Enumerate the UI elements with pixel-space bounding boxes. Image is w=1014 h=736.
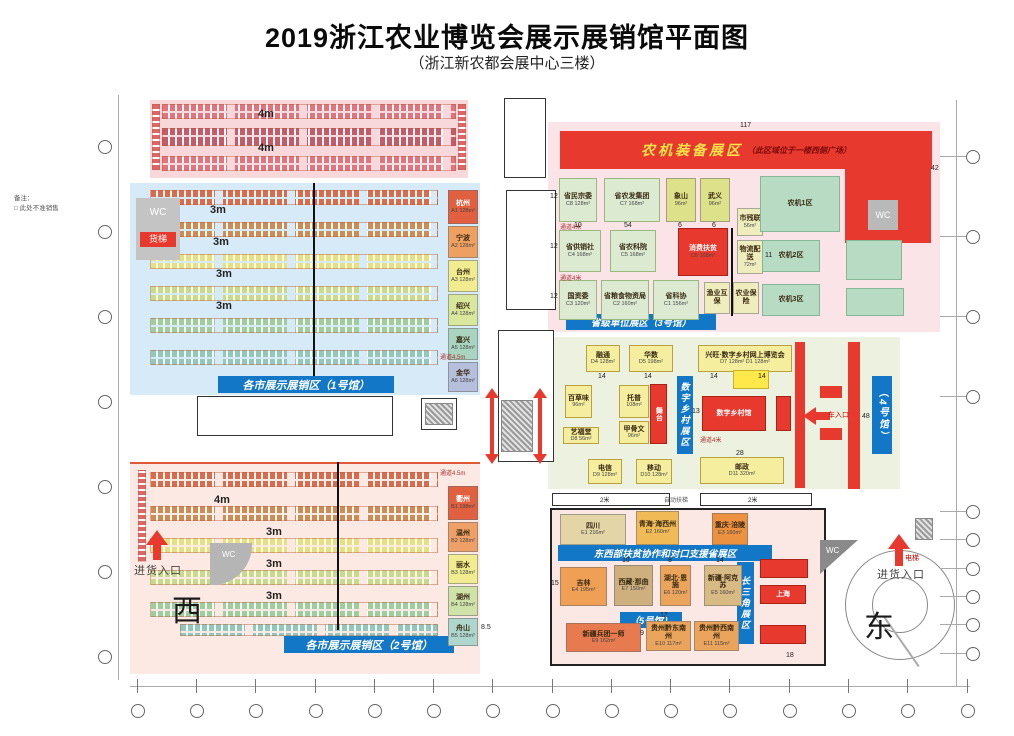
block-code: 96m² xyxy=(675,201,688,207)
map-block: 渔业互保 xyxy=(704,282,730,314)
block-code: D5 198m² xyxy=(639,359,663,365)
map-block: 湖州 B4 128m² xyxy=(448,586,478,616)
map-label: 6 xyxy=(712,222,716,229)
block-code: A3 128m² xyxy=(451,277,475,283)
map-label: 54 xyxy=(624,222,632,229)
map-block xyxy=(776,396,791,431)
block-code: A1 128m² xyxy=(451,208,475,214)
block-name: 华数 xyxy=(644,352,658,360)
block-name: 农业保险 xyxy=(735,290,757,305)
map-block: 金华 A6 128m² xyxy=(448,362,478,392)
west-entrance-arrow xyxy=(146,530,168,545)
block-code: 96m² xyxy=(709,201,722,207)
hall2-banner: 各市展示展销区（2号馆） xyxy=(284,636,454,653)
map-block: 省民宗委 C8 128m² xyxy=(559,178,597,222)
block-code: B1 198m² xyxy=(451,504,475,510)
map-label: 4m xyxy=(258,142,274,154)
map-block: 移动 D10 128m² xyxy=(636,459,672,484)
block-name: 西藏·那曲 xyxy=(618,579,648,587)
map-block: 托普 108m² xyxy=(619,385,649,418)
block-name: 省农科院 xyxy=(619,244,647,252)
block-name: 湖北·恩施 xyxy=(662,575,689,590)
map-block: 融通 D4 128m² xyxy=(586,345,620,372)
map-block: 艺福堂 D8 56m² xyxy=(563,427,599,444)
booth-strip xyxy=(162,104,456,119)
block-code: C5 168m² xyxy=(621,252,645,258)
block-name: 上海 xyxy=(776,591,790,599)
map-block: 四川 E1 216m² xyxy=(560,514,626,545)
map-label: 4m xyxy=(258,108,274,120)
map-block: 数字乡村馆 xyxy=(702,396,766,431)
block-code: E4 195m² xyxy=(572,587,596,593)
wc-label: WC xyxy=(136,198,180,228)
elevator-hatch xyxy=(425,403,453,425)
map-label: 通道4米 xyxy=(560,273,581,282)
booth-strip xyxy=(162,128,456,146)
block-code: C1 156m² xyxy=(664,301,688,307)
booth-strip xyxy=(152,104,160,170)
block-name: 丽水 xyxy=(456,562,470,570)
map-label: 14 xyxy=(598,373,606,380)
red-block xyxy=(820,386,842,398)
map-label: 15 xyxy=(551,580,559,587)
escalator-hatch xyxy=(501,400,533,452)
block-code: B5 128m² xyxy=(451,633,475,639)
block-name: 象山 xyxy=(674,193,688,201)
map-block: 消费扶贫 C6 168m² xyxy=(678,228,728,276)
map-label: 10 xyxy=(574,222,582,229)
booth-strip xyxy=(150,318,438,333)
map-label: 117 xyxy=(740,122,751,129)
block-code: D9 128m² xyxy=(593,472,617,478)
block-code: C6 168m² xyxy=(691,253,715,259)
corridor-rect xyxy=(552,493,670,506)
map-label: 2米 xyxy=(748,495,757,504)
machinery-banner: 农机装备展区 （此区域位于一楼西侧广场） xyxy=(560,131,932,169)
block-name: 托普 xyxy=(627,395,641,403)
booth-strip xyxy=(150,506,438,521)
booth-strip xyxy=(180,624,438,636)
map-block: 贵州黔东南州 E10 117m² xyxy=(646,621,691,651)
escalator-arrow xyxy=(485,388,499,464)
map-label: 14 xyxy=(710,373,718,380)
block-code: A5 128m² xyxy=(451,345,475,351)
grid-line-bottom xyxy=(130,686,970,687)
block-code: B4 128m² xyxy=(451,602,475,608)
block-name: 兴旺·数字乡村网上博览会 xyxy=(705,352,784,360)
map-block: 邮政 D11 320m² xyxy=(700,457,784,484)
east-west-banner: 东西部扶贫协作和对口支援省展区 xyxy=(558,545,772,561)
block-code: E7 150m² xyxy=(622,586,646,592)
stair-hatch xyxy=(915,518,933,540)
block-name: 数字乡村馆 xyxy=(717,410,752,418)
map-block: 新疆兵团一师 E9 162m² xyxy=(566,623,641,652)
booth-strip xyxy=(150,350,438,365)
block-name: 舞台 xyxy=(655,407,663,421)
map-block xyxy=(760,559,808,578)
map-label: 4m xyxy=(214,494,230,506)
block-code: C3 120m² xyxy=(566,301,590,307)
hall-divider xyxy=(337,462,339,630)
block-name: 电信 xyxy=(598,465,612,473)
block-name: 邮政 xyxy=(735,464,749,472)
red-block xyxy=(820,428,842,440)
block-name: 百草味 xyxy=(568,395,589,403)
map-label: 11 xyxy=(765,252,772,259)
block-code: D7 128m² D1 128m² xyxy=(720,359,770,365)
map-block xyxy=(760,625,806,644)
machinery-banner-text: 农机装备展区 xyxy=(641,140,743,160)
booth-strip xyxy=(162,156,456,171)
block-code: E5 160m² xyxy=(711,590,735,596)
legend-text: □ 此处不准销售 xyxy=(14,204,59,214)
map-block: 青海·海西州 E2 160m² xyxy=(636,511,679,545)
compass-east: 东 xyxy=(864,602,894,646)
elevator-label: 电梯 xyxy=(905,553,919,563)
map-label: 9 xyxy=(640,630,644,637)
map-block: 西藏·那曲 E7 150m² xyxy=(614,565,653,606)
wc-label: WC xyxy=(826,546,839,555)
map-label: 14 xyxy=(716,557,724,564)
block-name: 农机1区 xyxy=(788,200,813,208)
vehicle-entrance-label: 车入口 xyxy=(828,410,849,420)
block-name: 农机2区 xyxy=(779,252,804,260)
map-label: 8.5 xyxy=(481,624,491,631)
map-block: 百草味 96m² xyxy=(565,385,592,418)
booth-strip xyxy=(150,286,438,301)
page-title: 2019浙江农业博览会展示展销馆平面图 xyxy=(0,16,1014,55)
block-name: 湖州 xyxy=(456,594,470,602)
booth-strip xyxy=(150,570,438,585)
map-label: 3m xyxy=(266,558,282,570)
grid-line-left xyxy=(118,95,119,680)
map-label: 3m xyxy=(266,526,282,538)
block-code: D4 128m² xyxy=(591,359,615,365)
map-block: 电信 D9 128m² xyxy=(588,459,622,484)
block-name: 艺福堂 xyxy=(571,429,592,437)
block-code: A6 128m² xyxy=(451,378,475,384)
map-label: 通道4.5m xyxy=(440,468,465,477)
map-block: 省科协 C1 156m² xyxy=(653,280,699,320)
stage-area xyxy=(197,396,393,436)
block-name: 贵州黔东南州 xyxy=(648,625,689,640)
map-block xyxy=(846,288,904,316)
map-label: 14 xyxy=(758,373,766,380)
block-name: 物流配送 xyxy=(739,246,761,261)
block-name: 省粮食物资局 xyxy=(604,293,646,301)
block-code: E2 160m² xyxy=(646,529,670,535)
map-label: 18 xyxy=(786,652,794,659)
freight-elevator: 货梯 xyxy=(140,232,176,247)
map-block: 贵州黔西南州 E11 115m² xyxy=(694,621,739,651)
block-name: 市残联 xyxy=(740,215,761,223)
map-block: 宁波 A2 128m² xyxy=(448,226,478,258)
booth-strip xyxy=(150,538,438,553)
block-name: 新疆·阿克苏 xyxy=(706,575,740,590)
map-block: 省粮食物资局 C2 160m² xyxy=(601,280,649,320)
vehicle-entrance-arrow xyxy=(803,407,816,425)
map-label: 12 xyxy=(550,193,558,200)
map-block: 省农发集团 C7 168m² xyxy=(604,178,660,222)
block-code: D10 128m² xyxy=(640,472,667,478)
block-name: 新疆兵团一师 xyxy=(583,631,625,639)
block-code: E11 115m² xyxy=(703,641,729,647)
map-block: 农机1区 xyxy=(760,176,840,232)
map-label: 2米 xyxy=(600,495,609,504)
wc-hall1: WC xyxy=(136,198,180,260)
map-label: 3m xyxy=(266,590,282,602)
block-name: 四川 xyxy=(586,523,600,531)
block-code: C7 168m² xyxy=(620,201,644,207)
stairwell xyxy=(504,98,546,178)
map-block: 温州 B2 128m² xyxy=(448,522,478,552)
legend-label: 备注： xyxy=(14,194,59,204)
map-block: 华数 D5 198m² xyxy=(629,345,673,372)
hall-divider xyxy=(313,183,315,377)
block-name: 青海·海西州 xyxy=(639,521,676,529)
block-name: 武义 xyxy=(708,193,722,201)
block-name: 宁波 xyxy=(456,235,470,243)
map-block: 舟山 B5 128m² xyxy=(448,618,478,646)
wc-hall3: WC xyxy=(868,200,898,230)
block-name: 台州 xyxy=(456,269,470,277)
booth-strip xyxy=(458,104,466,170)
map-block: 上海 xyxy=(760,585,806,604)
legend-note: 备注： □ 此处不准销售 xyxy=(14,194,59,214)
block-name: 省供销社 xyxy=(566,244,594,252)
compass-west: 西 xyxy=(172,586,202,630)
map-label: 通道4米 xyxy=(700,435,721,444)
map-label: 3m xyxy=(213,236,229,248)
machinery-banner-note: （此区域位于一楼西侧广场） xyxy=(747,145,851,156)
map-block: 兴旺·数字乡村网上博览会 D7 128m² D1 128m² xyxy=(698,345,792,372)
map-block: 重庆·涪陵 E3 160m² xyxy=(712,513,748,545)
block-code: A4 128m² xyxy=(451,311,475,317)
east-entrance-arrow-shaft xyxy=(895,548,903,566)
map-block: 衢州 B1 198m² xyxy=(448,486,478,520)
hall1-banner: 各市展示展销区（1号馆） xyxy=(218,376,394,393)
block-name: 贵州黔西南州 xyxy=(696,625,737,640)
map-label: 28 xyxy=(736,450,744,457)
map-label: 3m xyxy=(216,268,232,280)
block-code: C2 160m² xyxy=(613,301,637,307)
booth-strip xyxy=(150,254,438,269)
map-block: 省农科院 C5 168m² xyxy=(610,230,656,272)
block-code: B3 128m² xyxy=(451,570,475,576)
block-name: 杭州 xyxy=(456,200,470,208)
block-code: 96m² xyxy=(572,402,585,408)
map-block: 杭州 A1 128m² xyxy=(448,190,478,224)
block-name: 绍兴 xyxy=(456,303,470,311)
block-name: 渔业互保 xyxy=(706,290,728,305)
block-code: E6 120m² xyxy=(664,590,688,596)
block-name: 移动 xyxy=(647,465,661,473)
west-entrance-label: 进货入口 xyxy=(134,562,182,578)
grid-line-right xyxy=(956,100,957,686)
block-code: E9 162m² xyxy=(592,638,616,644)
block-code: D11 320m² xyxy=(729,471,756,477)
digital-village-banner: 数字乡村展区 xyxy=(677,376,693,454)
floor-plan: 2019浙江农业博览会展示展销馆平面图 （浙江新农都会展中心三楼） 备注： □ … xyxy=(0,0,1014,736)
west-entrance-arrow-shaft xyxy=(153,544,161,560)
map-block: 农机3区 xyxy=(762,284,820,316)
map-label: 通道4.5m xyxy=(440,352,465,361)
map-label: 12 xyxy=(660,612,668,619)
east-entrance-arrow xyxy=(888,534,910,549)
map-block: 舞台 xyxy=(650,384,667,444)
wc-label: WC xyxy=(222,550,235,559)
block-name: 省民宗委 xyxy=(564,193,592,201)
east-entrance-label: 进货入口 xyxy=(877,566,925,582)
block-code: E1 216m² xyxy=(581,530,605,536)
block-name: 吉林 xyxy=(577,580,591,588)
block-code: A2 128m² xyxy=(451,243,475,249)
block-name: 温州 xyxy=(456,530,470,538)
booth-strip xyxy=(150,190,438,205)
map-label: 3m xyxy=(210,204,226,216)
block-name: 融通 xyxy=(596,352,610,360)
map-block xyxy=(846,240,902,280)
map-block: 物流配送 72m² xyxy=(737,240,763,274)
escalator-arrow xyxy=(533,388,547,464)
block-code: 56m² xyxy=(744,223,757,229)
map-block: 国资委 C3 120m² xyxy=(559,280,597,320)
block-name: 甲骨文 xyxy=(624,426,645,434)
booth-strip xyxy=(138,470,146,562)
map-label: 13 xyxy=(692,408,700,415)
map-block: 湖北·恩施 E6 120m² xyxy=(660,565,691,606)
map-label: 3m xyxy=(216,300,232,312)
map-label: 12 xyxy=(550,243,558,250)
map-label: 12 xyxy=(550,293,558,300)
page-subtitle: （浙江新农都会展中心三楼） xyxy=(0,52,1014,73)
block-code: 108m² xyxy=(626,402,642,408)
map-block: 丽水 B3 128m² xyxy=(448,554,478,584)
block-name: 重庆·涪陵 xyxy=(715,522,745,530)
map-block: 省供销社 C4 168m² xyxy=(559,230,601,272)
block-code: 96m² xyxy=(628,433,641,439)
block-code: E10 117m² xyxy=(655,641,682,647)
map-block: 象山 96m² xyxy=(666,178,696,222)
map-label: 42 xyxy=(931,165,939,172)
map-block: 绍兴 A4 128m² xyxy=(448,294,478,326)
block-name: 金华 xyxy=(456,370,470,378)
block-name: 衢州 xyxy=(456,496,470,504)
map-block: 农业保险 xyxy=(733,282,759,314)
block-code: C8 128m² xyxy=(566,201,590,207)
booth-strip xyxy=(150,472,438,487)
map-block: 新疆·阿克苏 E5 160m² xyxy=(704,565,742,606)
block-code: B2 128m² xyxy=(451,538,475,544)
block-name: 省科协 xyxy=(666,293,687,301)
block-name: 农机3区 xyxy=(779,296,804,304)
map-block: 甲骨文 96m² xyxy=(619,421,649,444)
map-label: 8 xyxy=(668,557,672,564)
map-label: 自动扶梯 xyxy=(664,495,688,504)
map-label: 14 xyxy=(644,373,652,380)
map-label: 10 xyxy=(622,557,630,564)
map-block: 吉林 E4 195m² xyxy=(560,567,607,606)
map-block: 台州 A3 128m² xyxy=(448,260,478,292)
hall4-banner: （4号馆） xyxy=(872,376,892,454)
block-name: 舟山 xyxy=(456,625,470,633)
block-name: 省农发集团 xyxy=(615,193,650,201)
block-code: C4 168m² xyxy=(568,252,592,258)
block-name: 国资委 xyxy=(568,293,589,301)
booth-strip xyxy=(150,222,438,237)
map-label: 6 xyxy=(678,222,682,229)
block-code: E3 160m² xyxy=(718,530,742,536)
block-name: 消费扶贫 xyxy=(689,245,717,253)
block-code: 72m² xyxy=(744,262,757,268)
map-block: 武义 96m² xyxy=(700,178,730,222)
block-name: 嘉兴 xyxy=(456,337,470,345)
stairwell xyxy=(506,190,556,310)
red-wall xyxy=(848,342,860,489)
block-code: D8 56m² xyxy=(570,436,591,442)
map-label: 48 xyxy=(862,413,870,420)
